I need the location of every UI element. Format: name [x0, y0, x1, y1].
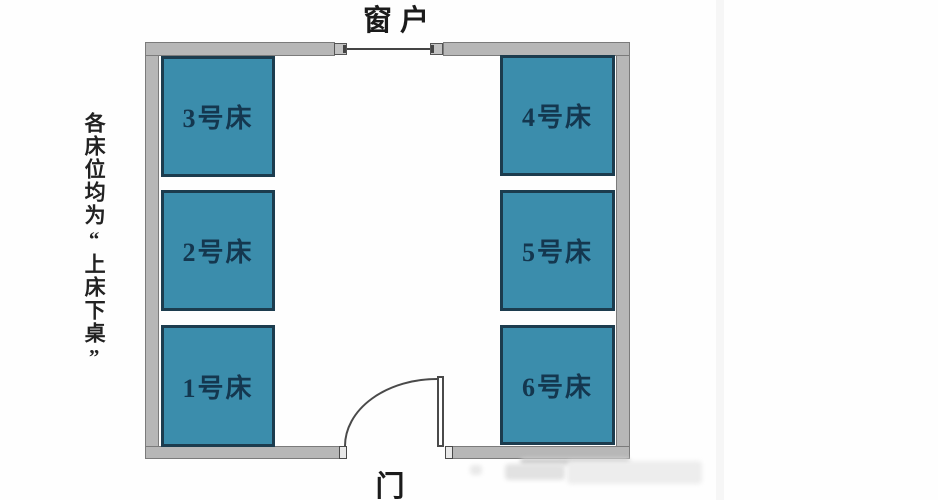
wall-top-left-segment: [145, 42, 335, 56]
window-jamb-left-icon: [334, 43, 347, 55]
wall-bottom-left-segment: [145, 446, 340, 459]
dorm-room-floor-plan: 窗户 各床位均为“上床下桌” 3号床 2号床 1号床 4号床 5号床 6号床 门: [0, 0, 938, 500]
watermark-smudge: [505, 464, 565, 480]
door-label: 门: [350, 463, 430, 500]
wall-left: [145, 42, 159, 459]
window-jamb-bar: [431, 45, 434, 53]
door-leaf-icon: [437, 376, 444, 447]
door-jamb-left-icon: [339, 446, 347, 459]
window-jamb-bar: [343, 45, 346, 53]
bed-3: 3号床: [161, 56, 275, 177]
door-swing-arc: [0, 0, 938, 500]
bed-2-label: 2号床: [182, 232, 253, 269]
wall-right: [616, 42, 630, 459]
watermark-smudge: [470, 465, 482, 475]
door-jamb-right-icon: [445, 446, 453, 459]
bed-4-label: 4号床: [522, 97, 593, 134]
bed-5: 5号床: [500, 190, 615, 311]
wall-top-right-segment: [443, 42, 630, 56]
image-seam-artifact: [716, 0, 724, 500]
bed-4: 4号床: [500, 55, 615, 176]
bed-5-label: 5号床: [522, 232, 593, 269]
bed-3-label: 3号床: [182, 98, 253, 135]
window-jamb-right-icon: [430, 43, 443, 55]
bed-1: 1号床: [161, 325, 275, 447]
bed-1-label: 1号床: [182, 368, 253, 405]
bed-6: 6号床: [500, 325, 615, 445]
side-note-vertical-text: 各床位均为“上床下桌”: [82, 112, 105, 382]
watermark-smudge: [567, 461, 702, 484]
window-label: 窗户: [335, 0, 465, 39]
window-pane-line: [347, 48, 431, 50]
bed-2: 2号床: [161, 190, 275, 311]
bed-6-label: 6号床: [522, 367, 593, 404]
